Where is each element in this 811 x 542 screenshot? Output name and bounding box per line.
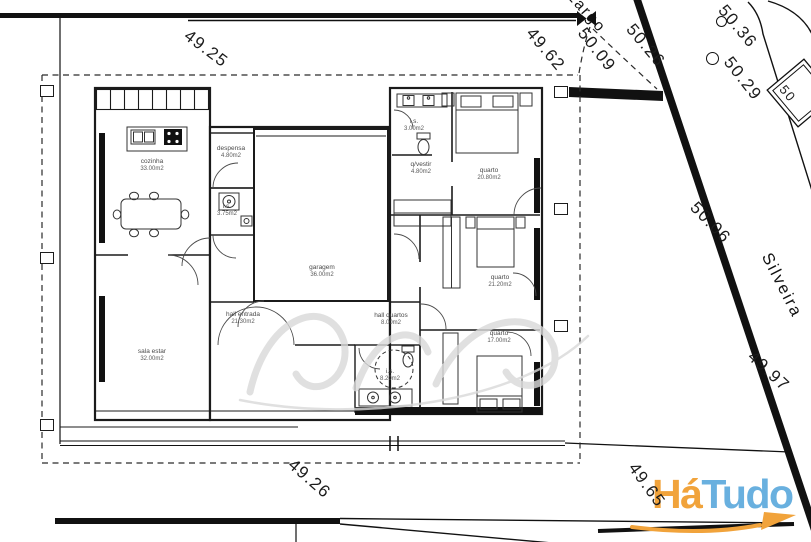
- dimension-label-top: 49.25: [180, 26, 232, 72]
- logo-part-tudo: Tudo: [701, 471, 792, 517]
- room-name: q/vestir: [411, 161, 432, 169]
- room-area: 3.75m2: [217, 211, 237, 219]
- dimension-label-east-lower: 49.97: [743, 347, 793, 396]
- room-name: sala estar: [138, 348, 166, 356]
- room-name: cozinha: [140, 158, 163, 166]
- elevation-label: 50.29: [719, 53, 766, 105]
- room-name: despensa: [217, 145, 245, 153]
- room-label-quarto3: quarto 17.00m2: [487, 330, 510, 346]
- room-name: garagem: [309, 264, 335, 272]
- room-name: quarto: [487, 330, 510, 338]
- room-area: 21.30m2: [226, 319, 260, 327]
- dimension-label-east-upper: 50.06: [686, 198, 735, 248]
- room-label-is1: i.s. 3.75m2: [217, 203, 237, 219]
- room-name: i.s.: [404, 118, 424, 126]
- room-label-quarto2: quarto 21.20m2: [488, 274, 511, 290]
- room-name: hall entrada: [226, 311, 260, 319]
- room-label-qvestir: q/vestir 4.80m2: [411, 161, 432, 177]
- room-area: 4.80m2: [217, 153, 245, 161]
- elevation-label: 50: [777, 82, 800, 105]
- room-name: quarto: [477, 167, 500, 175]
- room-area: 33.00m2: [140, 166, 163, 174]
- room-area: 36.00m2: [309, 272, 335, 280]
- room-area: 20.80m2: [477, 175, 500, 183]
- room-area: 17.00m2: [487, 338, 510, 346]
- room-label-despensa: despensa 4.80m2: [217, 145, 245, 161]
- label-layer: 49.25 49.62 50.06 49.97 49.26 50.36 50.2…: [0, 0, 811, 542]
- room-name: hall quartos: [374, 312, 408, 320]
- elevation-label: 50.26: [622, 20, 669, 71]
- room-label-garagem: garagem 36.00m2: [309, 264, 335, 280]
- room-label-is3: i.s. 8.20m2: [380, 368, 400, 384]
- room-label-hall-entrada: hall entrada 21.30m2: [226, 311, 260, 327]
- room-area: 8.20m2: [380, 376, 400, 384]
- hatudo-logo: HáTudo: [652, 474, 793, 515]
- room-label-cozinha: cozinha 33.00m2: [140, 158, 163, 174]
- room-area: 4.80m2: [411, 169, 432, 177]
- street-label-silveira: Silveira: [757, 250, 806, 321]
- room-area: 32.00m2: [138, 356, 166, 364]
- dimension-label-south: 49.26: [284, 455, 335, 503]
- room-name: i.s.: [380, 368, 400, 376]
- elevation-label: 50.36: [714, 1, 761, 52]
- dimension-label-northeast: 49.62: [522, 24, 569, 75]
- room-label-hall-quartos: hall quartos 8.00m2: [374, 312, 408, 328]
- room-label-is2: i.s. 3.00m2: [404, 118, 424, 134]
- room-area: 3.00m2: [404, 126, 424, 134]
- room-area: 8.00m2: [374, 320, 408, 328]
- room-label-quarto1: quarto 20.80m2: [477, 167, 500, 183]
- room-name: quarto: [488, 274, 511, 282]
- room-label-sala-estar: sala estar 32.00m2: [138, 348, 166, 364]
- floorplan-canvas: 49.25 49.62 50.06 49.97 49.26 50.36 50.2…: [0, 0, 811, 542]
- room-name: i.s.: [217, 203, 237, 211]
- room-area: 21.20m2: [488, 282, 511, 290]
